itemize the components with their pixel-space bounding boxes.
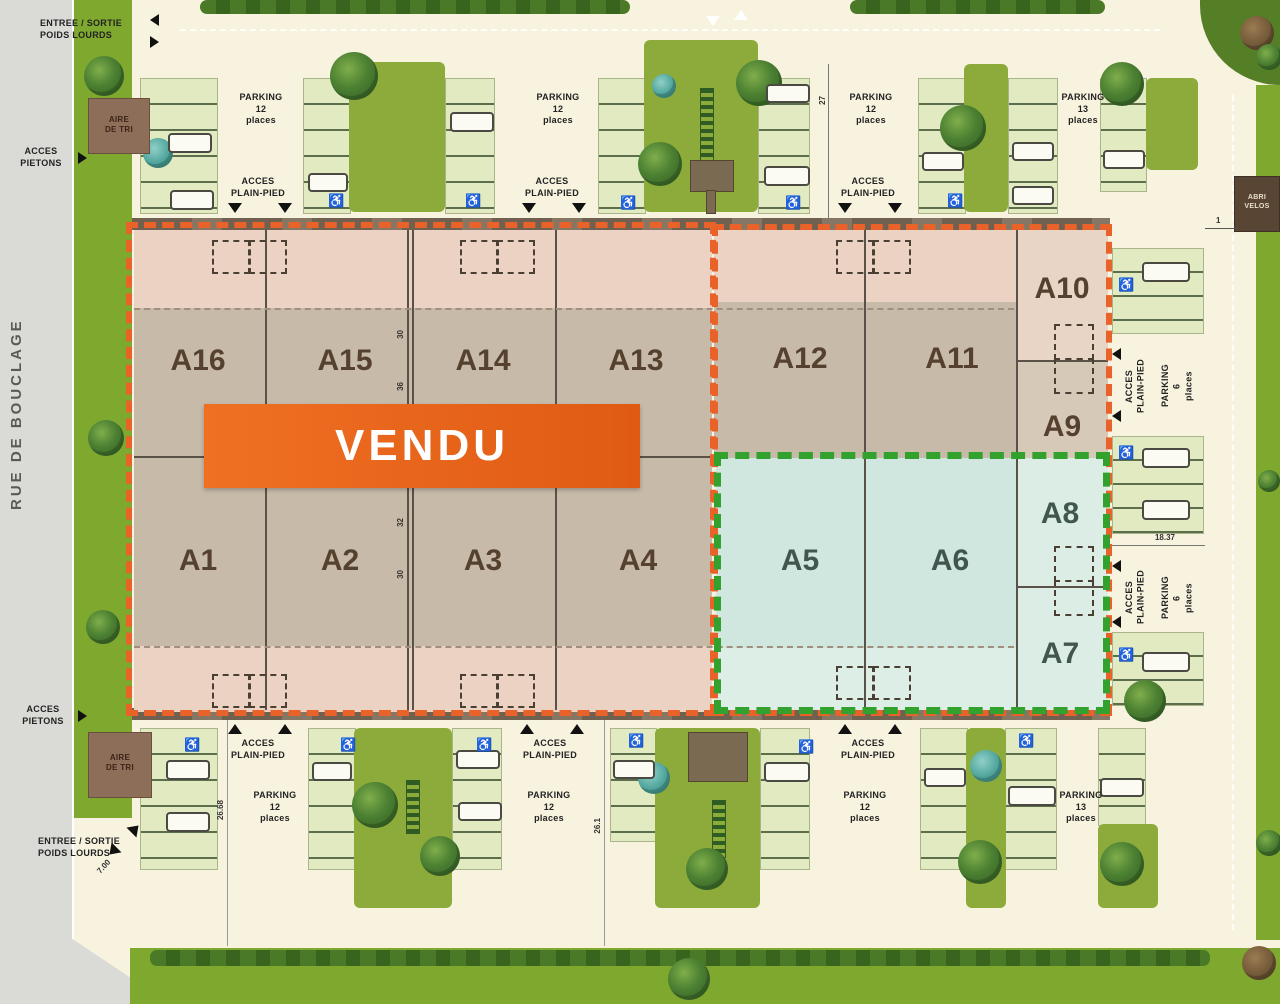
car: [613, 760, 655, 779]
access-arrow-icon: [228, 203, 242, 213]
access-word2: PLAIN-PIED: [1136, 338, 1148, 434]
access-word: ACCES: [506, 176, 598, 188]
pedestrian-word: PIETONS: [8, 158, 74, 170]
access-arrow-icon: [572, 203, 586, 213]
door-dashed: [497, 240, 535, 274]
wheelchair-icon: ♿: [465, 194, 481, 207]
dimension-line: [1205, 228, 1235, 229]
sold-banner: VENDU: [204, 404, 640, 488]
tree: [84, 56, 124, 96]
unit-label-a12: A12: [760, 342, 840, 376]
access-arrow-icon: [1112, 616, 1121, 628]
parking-label: PARKING 12 places: [218, 92, 304, 127]
tree: [668, 958, 710, 1000]
car: [450, 112, 494, 132]
parking-count: 12: [506, 802, 592, 814]
access-arrow-icon: [888, 203, 902, 213]
parking-places: places: [218, 115, 304, 127]
access-word2: PLAIN-PIED: [504, 750, 596, 762]
wheelchair-icon: ♿: [947, 194, 963, 207]
car: [168, 133, 212, 153]
parking-places: places: [232, 813, 318, 825]
access-word: ACCES: [212, 176, 304, 188]
road-arrow-icon: [706, 16, 720, 26]
wheelchair-icon: ♿: [340, 738, 356, 751]
car: [456, 750, 500, 769]
sorting-line1: AIRE: [89, 115, 149, 125]
dimension-line: [828, 64, 829, 218]
door-dashed: [873, 666, 911, 700]
shelter: [688, 732, 748, 782]
car: [1012, 186, 1054, 205]
car: [922, 152, 964, 171]
entrance-line2: POIDS LOURDS: [40, 30, 144, 42]
access-word2: PLAIN-PIED: [822, 750, 914, 762]
car: [1103, 150, 1145, 169]
access-word2: PLAIN-PIED: [822, 188, 914, 200]
wheelchair-icon: ♿: [328, 194, 344, 207]
truck-entrance-label: ENTREE / SORTIE POIDS LOURDS: [40, 18, 144, 41]
car: [170, 190, 214, 210]
access-arrow-icon: [838, 203, 852, 213]
unit-label-a5: A5: [760, 544, 840, 578]
tree-teal: [652, 74, 676, 98]
tree: [88, 420, 124, 456]
parking-places: places: [828, 115, 914, 127]
parking-places: places: [1183, 548, 1195, 648]
swale-hatch: [406, 780, 420, 834]
car: [166, 812, 210, 832]
door-dashed: [873, 240, 911, 274]
parking-label: PARKING 13 places: [1038, 790, 1124, 825]
parking-word: PARKING: [1160, 334, 1172, 438]
pedestrian-arrow-icon: [78, 710, 87, 722]
dimension-wall: 30: [396, 330, 405, 339]
top-road-centerline: [180, 29, 1160, 31]
door-dashed: [1054, 580, 1094, 616]
tree: [86, 610, 120, 644]
street-name: RUE DE BOUCLAGE: [8, 250, 25, 510]
parking-label: PARKING 12 places: [828, 92, 914, 127]
unit-label-a4: A4: [598, 544, 678, 578]
wheelchair-icon: ♿: [184, 738, 200, 751]
access-arrow-icon: [570, 724, 584, 734]
parking-count: 12: [828, 104, 914, 116]
dimension-bottom-left: 26.68: [216, 800, 225, 820]
plot-border-green: [714, 452, 1110, 714]
wheelchair-icon: ♿: [785, 196, 801, 209]
parking-places: places: [822, 813, 908, 825]
door-dashed: [212, 674, 250, 708]
unit-label-a11: A11: [912, 342, 992, 376]
parking-word: PARKING: [1040, 92, 1126, 104]
unit-label-a8: A8: [1020, 497, 1100, 531]
access-arrow-icon: [1112, 348, 1121, 360]
access-label-vertical: ACCES PLAIN-PIED: [1124, 552, 1147, 642]
unit-label-a2: A2: [300, 544, 380, 578]
access-label: ACCES PLAIN-PIED: [822, 176, 914, 199]
door-dashed: [836, 240, 874, 274]
door-dashed: [249, 240, 287, 274]
car: [166, 760, 210, 780]
parking-word: PARKING: [828, 92, 914, 104]
dimension-bottom-center: 26.1: [593, 818, 602, 834]
entrance-line2: POIDS LOURDS: [38, 848, 154, 860]
sorting-area-box: AIRE DE TRI: [88, 98, 150, 154]
parking-bays: [598, 78, 646, 214]
access-arrow-icon: [228, 724, 242, 734]
parking-count: 6: [1172, 334, 1184, 438]
parking-word: PARKING: [218, 92, 304, 104]
dimension-wall: 36: [396, 382, 405, 391]
access-word: ACCES: [1124, 552, 1136, 642]
parking-count: 13: [1040, 104, 1126, 116]
dimension-line: [227, 720, 228, 946]
shelter: [690, 160, 734, 192]
access-arrow-icon: [522, 203, 536, 213]
access-word2: PLAIN-PIED: [1136, 552, 1148, 642]
parking-word: PARKING: [506, 790, 592, 802]
dimension-entrance: 7.00: [95, 858, 112, 876]
parking-places: places: [515, 115, 601, 127]
tree: [352, 782, 398, 828]
access-word: ACCES: [1124, 338, 1136, 434]
car: [766, 84, 810, 103]
wheelchair-icon: ♿: [1118, 446, 1134, 459]
top-hedge: [200, 0, 630, 14]
door-dashed: [1054, 324, 1094, 360]
site-plan: RUE DE BOUCLAGE ♿ ♿: [0, 0, 1280, 1004]
dimension-gate: 1: [1216, 216, 1220, 225]
tree: [1256, 44, 1280, 70]
access-arrow-icon: [838, 724, 852, 734]
access-arrow-icon: [278, 203, 292, 213]
parking-places: places: [1183, 334, 1195, 438]
parking-count: 12: [232, 802, 318, 814]
bike-line1: ABRI: [1235, 193, 1279, 202]
access-arrow-icon: [1112, 560, 1121, 572]
access-arrow-icon: [1112, 410, 1121, 422]
tree: [1256, 830, 1280, 856]
sorting-line1: AIRE: [89, 753, 151, 763]
door-dashed: [497, 674, 535, 708]
wheelchair-icon: ♿: [1118, 278, 1134, 291]
pedestrian-access-label: ACCES PIETONS: [8, 146, 74, 169]
wheelchair-icon: ♿: [1018, 734, 1034, 747]
unit-label-a10: A10: [1022, 272, 1102, 306]
car: [1142, 448, 1190, 468]
car: [1142, 652, 1190, 672]
unit-label-a16: A16: [158, 344, 238, 378]
unit-label-a13: A13: [596, 344, 676, 378]
road-arrow-icon: [734, 10, 748, 20]
pedestrian-access-label: ACCES PIETONS: [10, 704, 76, 727]
unit-label-a7: A7: [1020, 637, 1100, 671]
access-label-vertical: ACCES PLAIN-PIED: [1124, 338, 1147, 434]
parking-places: places: [1040, 115, 1126, 127]
access-word: ACCES: [8, 146, 74, 158]
door-dashed: [836, 666, 874, 700]
parking-count: 12: [218, 104, 304, 116]
tree: [420, 836, 460, 876]
access-label: ACCES PLAIN-PIED: [822, 738, 914, 761]
unit-label-a6: A6: [910, 544, 990, 578]
shelter-post: [706, 190, 716, 214]
tree: [330, 52, 378, 100]
parking-label-vertical: PARKING 6 places: [1160, 334, 1195, 438]
parking-places: places: [1038, 813, 1124, 825]
parking-word: PARKING: [1160, 548, 1172, 648]
green-strip-right: [1146, 78, 1198, 170]
car: [764, 166, 810, 186]
access-label: ACCES PLAIN-PIED: [212, 738, 304, 761]
parking-word: PARKING: [822, 790, 908, 802]
wheelchair-icon: ♿: [628, 734, 644, 747]
dimension-right-lane: 18.37: [1140, 533, 1190, 542]
car: [308, 173, 348, 192]
door-dashed: [212, 240, 250, 274]
tree: [1124, 680, 1166, 722]
parking-count: 12: [515, 104, 601, 116]
access-label: ACCES PLAIN-PIED: [506, 176, 598, 199]
sorting-line2: DE TRI: [89, 125, 149, 135]
parking-label: PARKING 12 places: [232, 790, 318, 825]
access-arrow-icon: [520, 724, 534, 734]
bike-shelter-box: ABRI VELOS: [1234, 176, 1280, 232]
unit-label-a14: A14: [443, 344, 523, 378]
parking-word: PARKING: [515, 92, 601, 104]
access-word: ACCES: [10, 704, 76, 716]
access-word2: PLAIN-PIED: [212, 188, 304, 200]
unit-label-a3: A3: [443, 544, 523, 578]
parking-count: 6: [1172, 548, 1184, 648]
access-word2: PLAIN-PIED: [506, 188, 598, 200]
dimension-top: 27: [818, 96, 827, 105]
entrance-line1: ENTREE / SORTIE: [38, 836, 154, 848]
parking-word: PARKING: [232, 790, 318, 802]
truck-entrance-label: ENTREE / SORTIE POIDS LOURDS: [38, 836, 154, 859]
car: [1142, 500, 1190, 520]
parking-places: places: [506, 813, 592, 825]
parking-label: PARKING 12 places: [506, 790, 592, 825]
access-label: ACCES PLAIN-PIED: [212, 176, 304, 199]
dimension-wall: 30: [396, 570, 405, 579]
wheelchair-icon: ♿: [798, 740, 814, 753]
top-hedge: [850, 0, 1105, 14]
unit-label-a1: A1: [158, 544, 238, 578]
dimension-line: [604, 720, 605, 946]
access-word: ACCES: [504, 738, 596, 750]
tree: [940, 105, 986, 151]
truck-arrow-icon: [150, 36, 159, 48]
parking-count: 12: [822, 802, 908, 814]
tree: [1242, 946, 1276, 980]
bike-line2: VELOS: [1235, 202, 1279, 211]
car: [764, 762, 810, 782]
car: [458, 802, 502, 821]
unit-label-a15: A15: [305, 344, 385, 378]
door-dashed: [460, 240, 498, 274]
parking-label-vertical: PARKING 6 places: [1160, 548, 1195, 648]
dimension-line: [1112, 545, 1205, 546]
entrance-line1: ENTREE / SORTIE: [40, 18, 144, 30]
sorting-area-box: AIRE DE TRI: [88, 732, 152, 798]
parking-word: PARKING: [1038, 790, 1124, 802]
access-word: ACCES: [822, 738, 914, 750]
wheelchair-icon: ♿: [476, 738, 492, 751]
pedestrian-word: PIETONS: [10, 716, 76, 728]
parking-label: PARKING 12 places: [515, 92, 601, 127]
door-dashed: [249, 674, 287, 708]
unit-label-a9: A9: [1022, 410, 1102, 444]
access-arrow-icon: [278, 724, 292, 734]
access-word2: PLAIN-PIED: [212, 750, 304, 762]
parking-label: PARKING 13 places: [1040, 92, 1126, 127]
dimension-wall: 32: [396, 518, 405, 527]
car: [1012, 142, 1054, 161]
wheelchair-icon: ♿: [620, 196, 636, 209]
access-word: ACCES: [822, 176, 914, 188]
pedestrian-arrow-icon: [78, 152, 87, 164]
truck-arrow-icon: [150, 14, 159, 26]
car: [924, 768, 966, 787]
car: [312, 762, 352, 781]
access-arrow-icon: [888, 724, 902, 734]
tree: [1258, 470, 1280, 492]
door-dashed: [460, 674, 498, 708]
tree: [958, 840, 1002, 884]
access-label: ACCES PLAIN-PIED: [504, 738, 596, 761]
door-dashed: [1054, 546, 1094, 582]
tree: [638, 142, 682, 186]
tree: [686, 848, 728, 890]
tree: [1100, 842, 1144, 886]
door-dashed: [1054, 358, 1094, 394]
tree-teal: [970, 750, 1002, 782]
wheelchair-icon: ♿: [1118, 648, 1134, 661]
sorting-line2: DE TRI: [89, 763, 151, 773]
parking-label: PARKING 12 places: [822, 790, 908, 825]
car: [1142, 262, 1190, 282]
access-word: ACCES: [212, 738, 304, 750]
parking-count: 13: [1038, 802, 1124, 814]
